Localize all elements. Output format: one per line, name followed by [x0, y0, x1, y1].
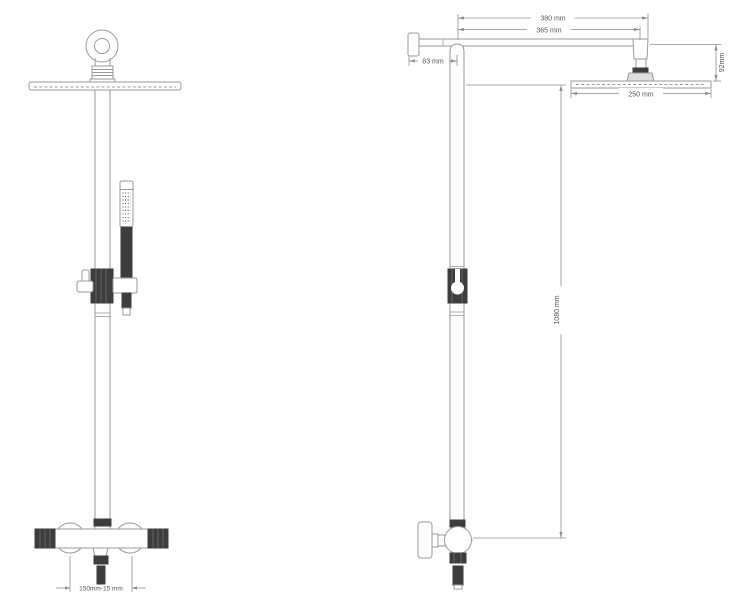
dim-label-inlet-spacing: 150mm-15 mm [79, 586, 123, 593]
hose-connector [122, 293, 131, 308]
valve-body-side [418, 522, 473, 589]
dim-label-riser-height: 1080 mm [554, 295, 561, 324]
valve-body-front [35, 523, 168, 584]
dim-label-head-height: 92mm [719, 53, 726, 73]
outlet-nut [94, 556, 108, 564]
slider-block-front [77, 269, 113, 303]
wall-flange [408, 33, 419, 56]
dim-head-height: 92mm [650, 45, 726, 82]
holder-ring [451, 282, 464, 295]
dim-label-head-diameter: 250 mm [628, 92, 653, 99]
valve-outlet-stem [453, 566, 463, 585]
dim-label-arm-total: 380 mm [540, 16, 565, 23]
outlet-cone [93, 548, 108, 556]
hand-shower [120, 181, 133, 280]
gooseneck-loop [86, 30, 118, 83]
rain-head-front [29, 82, 181, 90]
dim-riser-height: 1080 mm [466, 85, 566, 538]
dim-arm-to-head-center: 365 mm [458, 24, 640, 40]
dim-head-diameter: 250 mm [571, 88, 711, 99]
hand-shower-handle [121, 227, 132, 280]
shower-technical-drawing: 150mm-15 mm [0, 0, 738, 600]
hand-shower-holder [113, 278, 137, 315]
wall-arm [408, 33, 634, 56]
outlet-stem [97, 566, 105, 584]
drawing-canvas: 150mm-15 mm [0, 0, 738, 600]
valve-wall-plate [418, 522, 432, 558]
slider-block-side [448, 269, 467, 303]
riser-pipe-front [94, 90, 111, 530]
dim-label-wall-offset: 83 mm [422, 59, 444, 66]
dim-label-arm-to-head-center: 365 mm [536, 28, 561, 35]
front-view [29, 30, 181, 584]
